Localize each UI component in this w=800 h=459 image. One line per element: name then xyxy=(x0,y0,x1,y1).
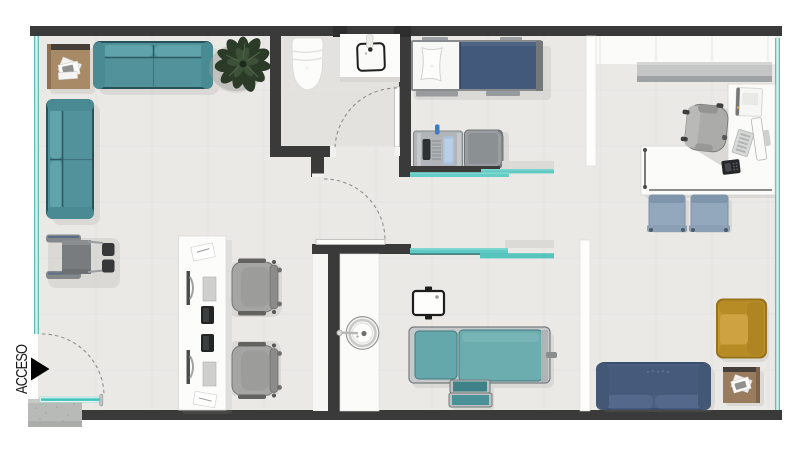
svg-text:ACCESO: ACCESO xyxy=(14,344,32,394)
